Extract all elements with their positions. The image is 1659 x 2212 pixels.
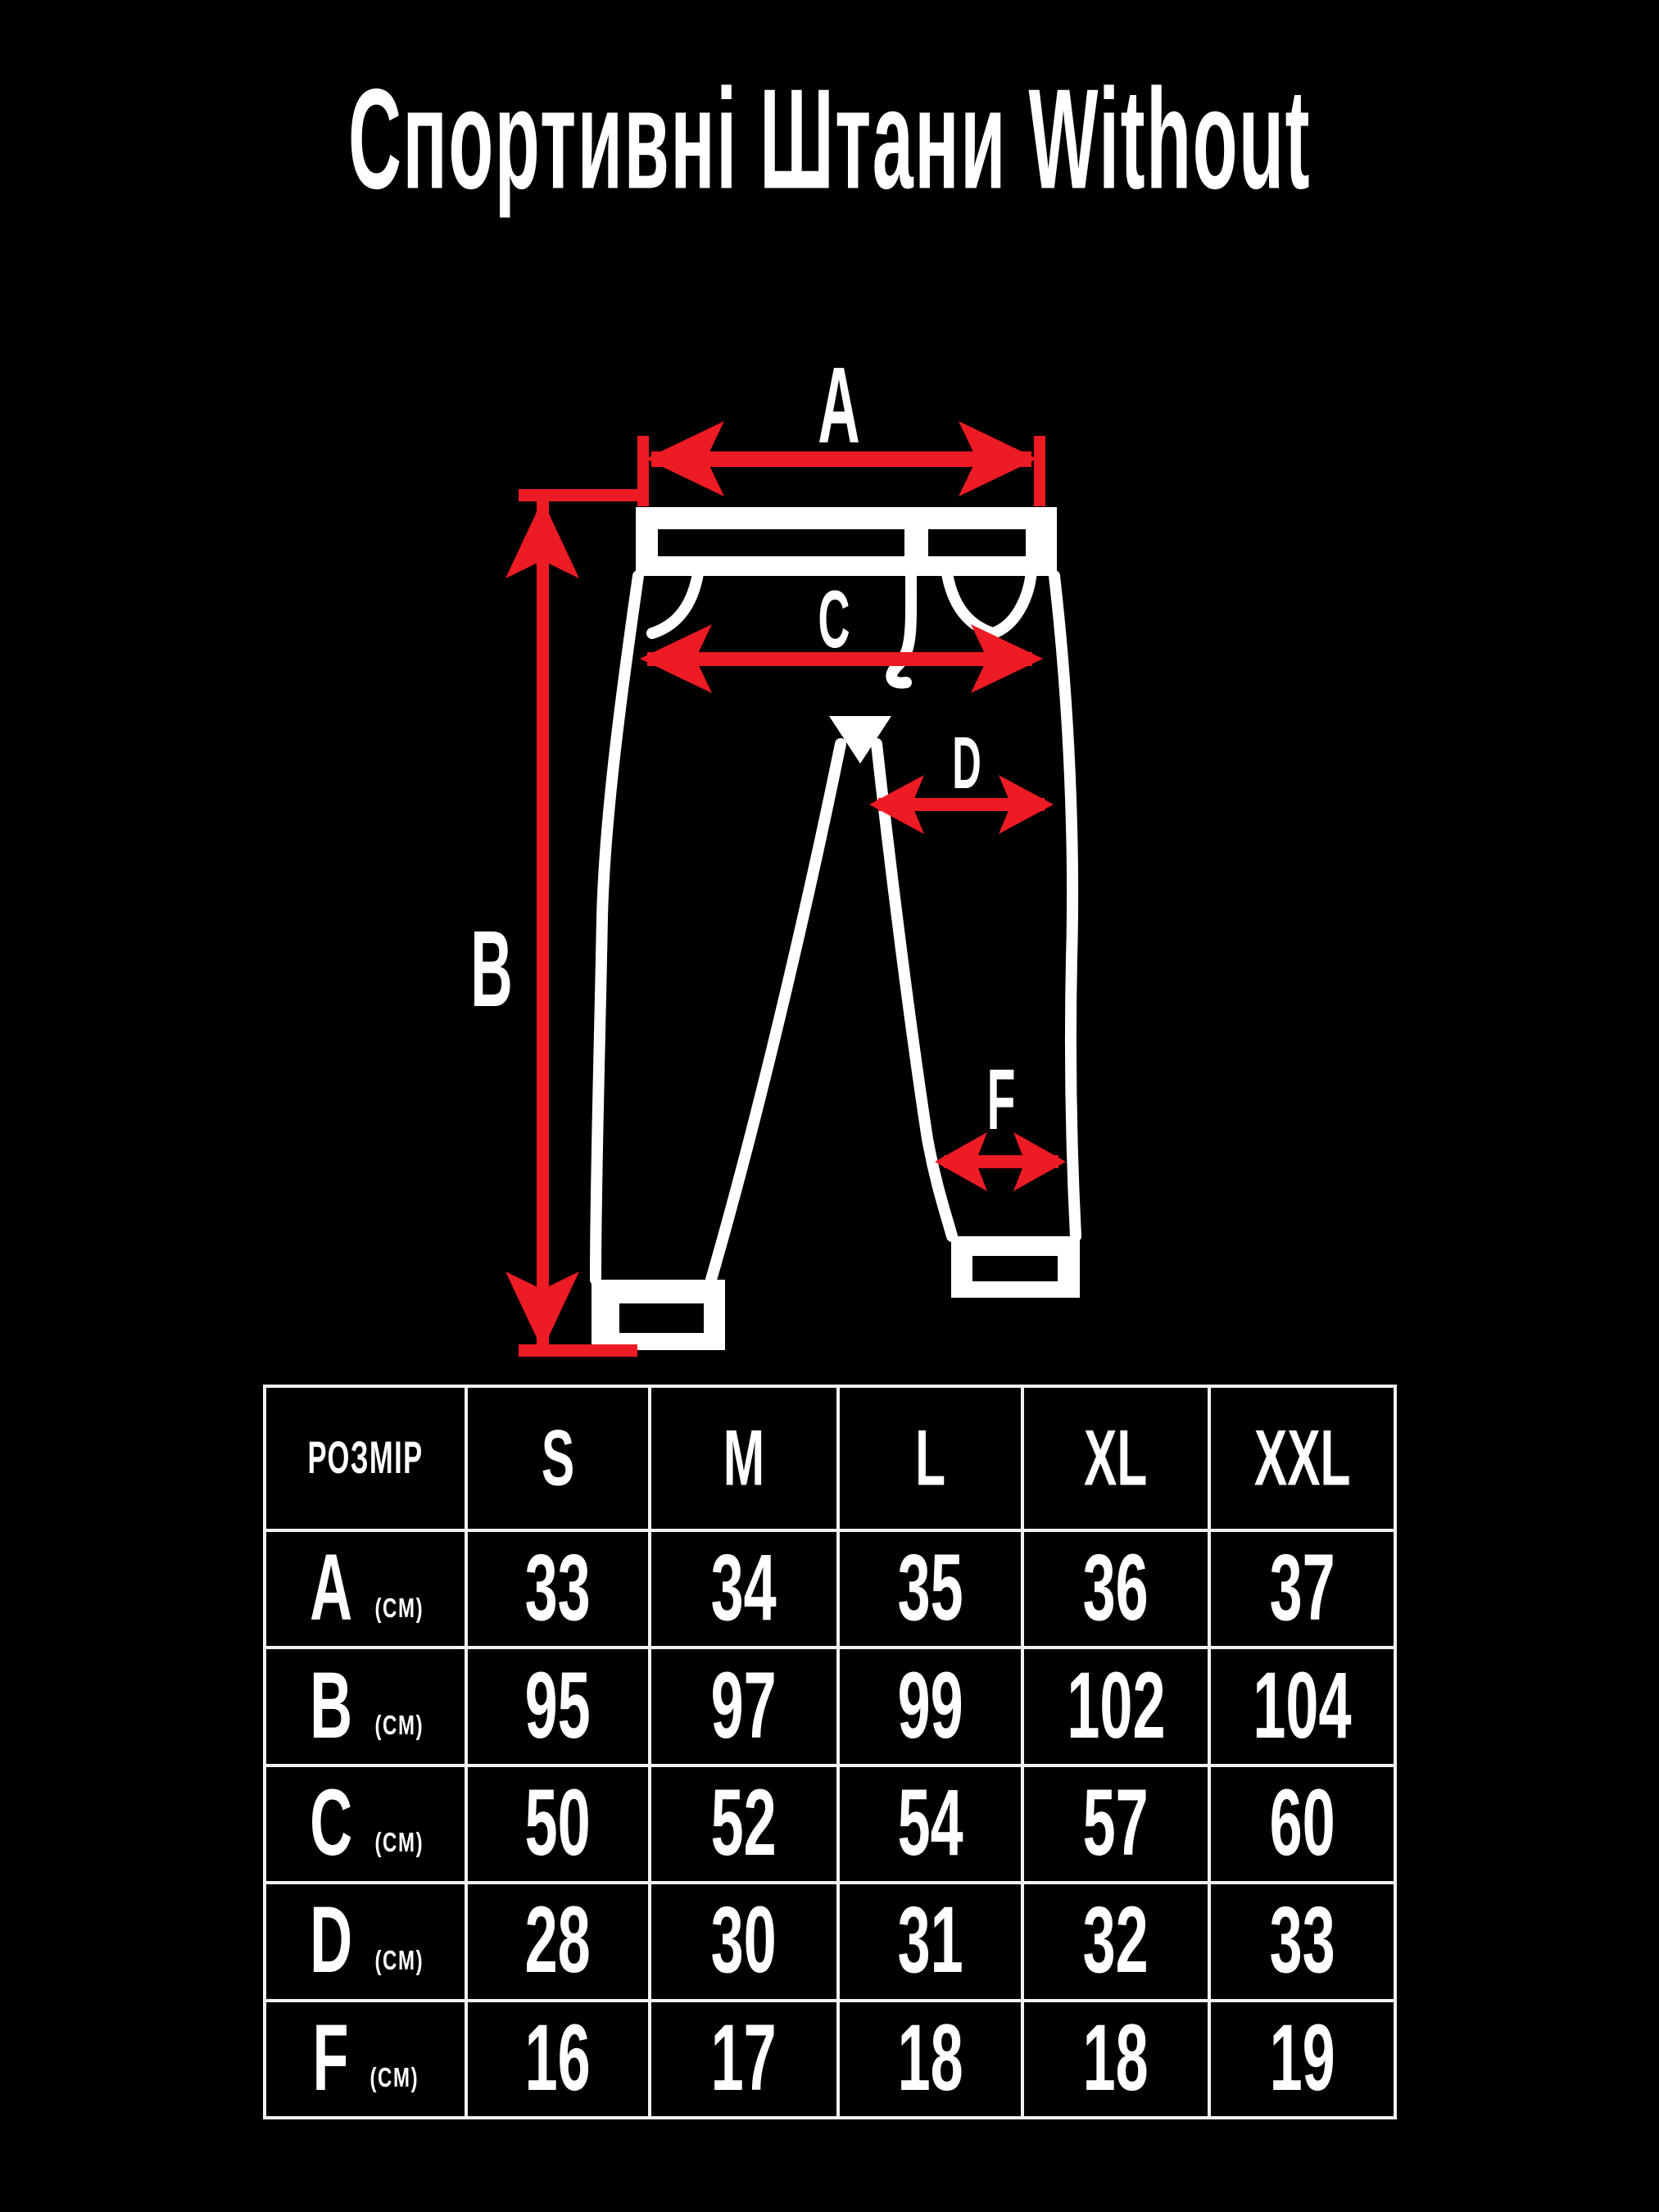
right-cuff-slot xyxy=(972,1256,1058,1281)
value-cell-a-m: 34 xyxy=(651,1532,836,1646)
row-label-b: B (CM) xyxy=(266,1649,465,1763)
row-label-d: D (CM) xyxy=(266,1884,465,1998)
header-cell-size-col: РОЗМІР xyxy=(266,1388,465,1529)
value-cell-f-l: 18 xyxy=(840,2002,1021,2116)
value-cell-a-s: 33 xyxy=(468,1532,648,1646)
value-cell-d-m: 30 xyxy=(651,1884,836,1998)
value-cell-b-xxl: 104 xyxy=(1211,1649,1394,1763)
value-cell-b-xl: 102 xyxy=(1024,1649,1208,1763)
value-cell-f-xxl: 19 xyxy=(1211,2002,1394,2116)
left-cuff-slot xyxy=(619,1303,704,1333)
row-label-a: A (CM) xyxy=(266,1532,465,1646)
right-outer-seam xyxy=(1054,576,1076,1236)
label-c: C xyxy=(818,574,850,664)
value-cell-c-s: 50 xyxy=(468,1767,648,1881)
value-cell-f-xl: 18 xyxy=(1024,2002,1208,2116)
row-label-c: C (CM) xyxy=(266,1767,465,1881)
label-a: A xyxy=(818,344,859,465)
row-label-f: F (CM) xyxy=(266,2002,465,2116)
header-cell-size-xl: XL xyxy=(1024,1388,1208,1529)
value-cell-a-l: 35 xyxy=(840,1532,1021,1646)
label-d: D xyxy=(952,722,981,805)
unit-label: (CM) xyxy=(374,1593,424,1624)
unit-label: (CM) xyxy=(374,1711,424,1741)
left-pocket-curve xyxy=(652,569,699,633)
header-cell-size-xxl: XXL xyxy=(1211,1388,1394,1529)
value-cell-b-m: 97 xyxy=(651,1649,836,1763)
size-chart-page: Спортивні Штани Without xyxy=(0,0,1659,2212)
value-cell-f-s: 16 xyxy=(468,2002,648,2116)
value-cell-c-xxl: 60 xyxy=(1211,1767,1394,1881)
measurement-arrow-b xyxy=(505,489,637,1357)
label-b: B xyxy=(470,908,512,1029)
value-cell-b-s: 95 xyxy=(468,1649,648,1763)
unit-label: (CM) xyxy=(370,2064,419,2094)
value-cell-f-m: 17 xyxy=(651,2002,836,2116)
right-pocket-curve xyxy=(946,569,993,633)
header-cell-size-l: L xyxy=(840,1388,1021,1529)
value-cell-c-m: 52 xyxy=(651,1767,836,1881)
waistband-slot-left xyxy=(658,529,904,556)
waistband-slot-right xyxy=(928,529,1026,556)
value-cell-a-xl: 36 xyxy=(1024,1532,1208,1646)
fly-stitch xyxy=(891,578,911,682)
left-inner-seam xyxy=(711,744,841,1280)
value-cell-b-l: 99 xyxy=(840,1649,1021,1763)
value-cell-d-xl: 32 xyxy=(1024,1884,1208,1998)
value-cell-c-l: 54 xyxy=(840,1767,1021,1881)
size-table: РОЗМІР S M L XL XXL A (CM) 33 34 35 36 3… xyxy=(263,1385,1397,2119)
value-cell-a-xxl: 37 xyxy=(1211,1532,1394,1646)
unit-label: (CM) xyxy=(374,1829,424,1859)
right-pocket-bag xyxy=(993,570,1031,633)
left-outer-seam xyxy=(596,576,638,1280)
value-cell-c-xl: 57 xyxy=(1024,1767,1208,1881)
header-cell-size-s: S xyxy=(468,1388,648,1529)
value-cell-d-s: 28 xyxy=(468,1884,648,1998)
value-cell-d-xxl: 33 xyxy=(1211,1884,1394,1998)
header-cell-size-m: M xyxy=(651,1388,836,1529)
unit-label: (CM) xyxy=(374,1946,424,1976)
value-cell-d-l: 31 xyxy=(840,1884,1021,1998)
label-f: F xyxy=(987,1052,1016,1148)
size-col-title: РОЗМІР xyxy=(307,1432,423,1484)
